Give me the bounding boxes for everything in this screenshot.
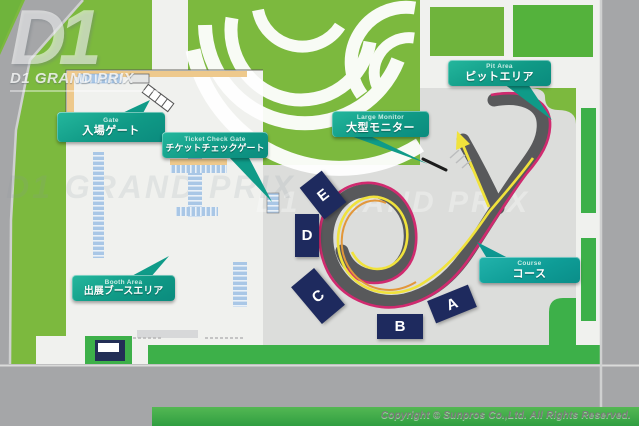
badge-course-label-en: Course [479,260,580,267]
copyright-text: Copyright © Sunpros Co.,Ltd. All Rights … [381,410,631,421]
badge-ticket-check-gate: Ticket Check Gate チケットチェックゲート [162,132,268,158]
right-road [602,0,639,426]
badge-large-monitor: Large Monitor 大型モニター [332,111,429,137]
booth-tent [78,74,122,83]
badge-gate: Gate 入場ゲート [57,112,165,142]
badge-monitor-label-jp: 大型モニター [332,122,429,134]
badge-pit-area: Pit Area ピットエリア [448,60,551,86]
badge-monitor-label-en: Large Monitor [332,114,429,121]
grandstand-b: B [377,314,423,339]
badge-ticket-label-jp: チケットチェックゲート [162,144,268,154]
booth-tent [233,262,247,307]
grandstand-d: D [295,214,319,257]
venue-map: D1 GRAND PRIX D1 GRAND PRIX [0,0,639,426]
badge-booth-area: Booth Area 出展ブースエリア [72,275,175,301]
badge-booth-label-jp: 出展ブースエリア [72,286,175,297]
badge-gate-label-jp: 入場ゲート [57,125,165,137]
booth-tent [170,165,227,173]
badge-pit-label-en: Pit Area [448,63,551,70]
info-sign [98,343,119,352]
gate-building [130,74,149,83]
badge-course: Course コース [479,257,580,283]
badge-pit-label-jp: ピットエリア [448,71,551,83]
badge-booth-label-en: Booth Area [72,279,175,286]
badge-course-label-jp: コース [479,268,580,280]
booth-tent [176,207,218,216]
booth-tent [93,152,104,258]
badge-gate-label-en: Gate [57,117,165,124]
